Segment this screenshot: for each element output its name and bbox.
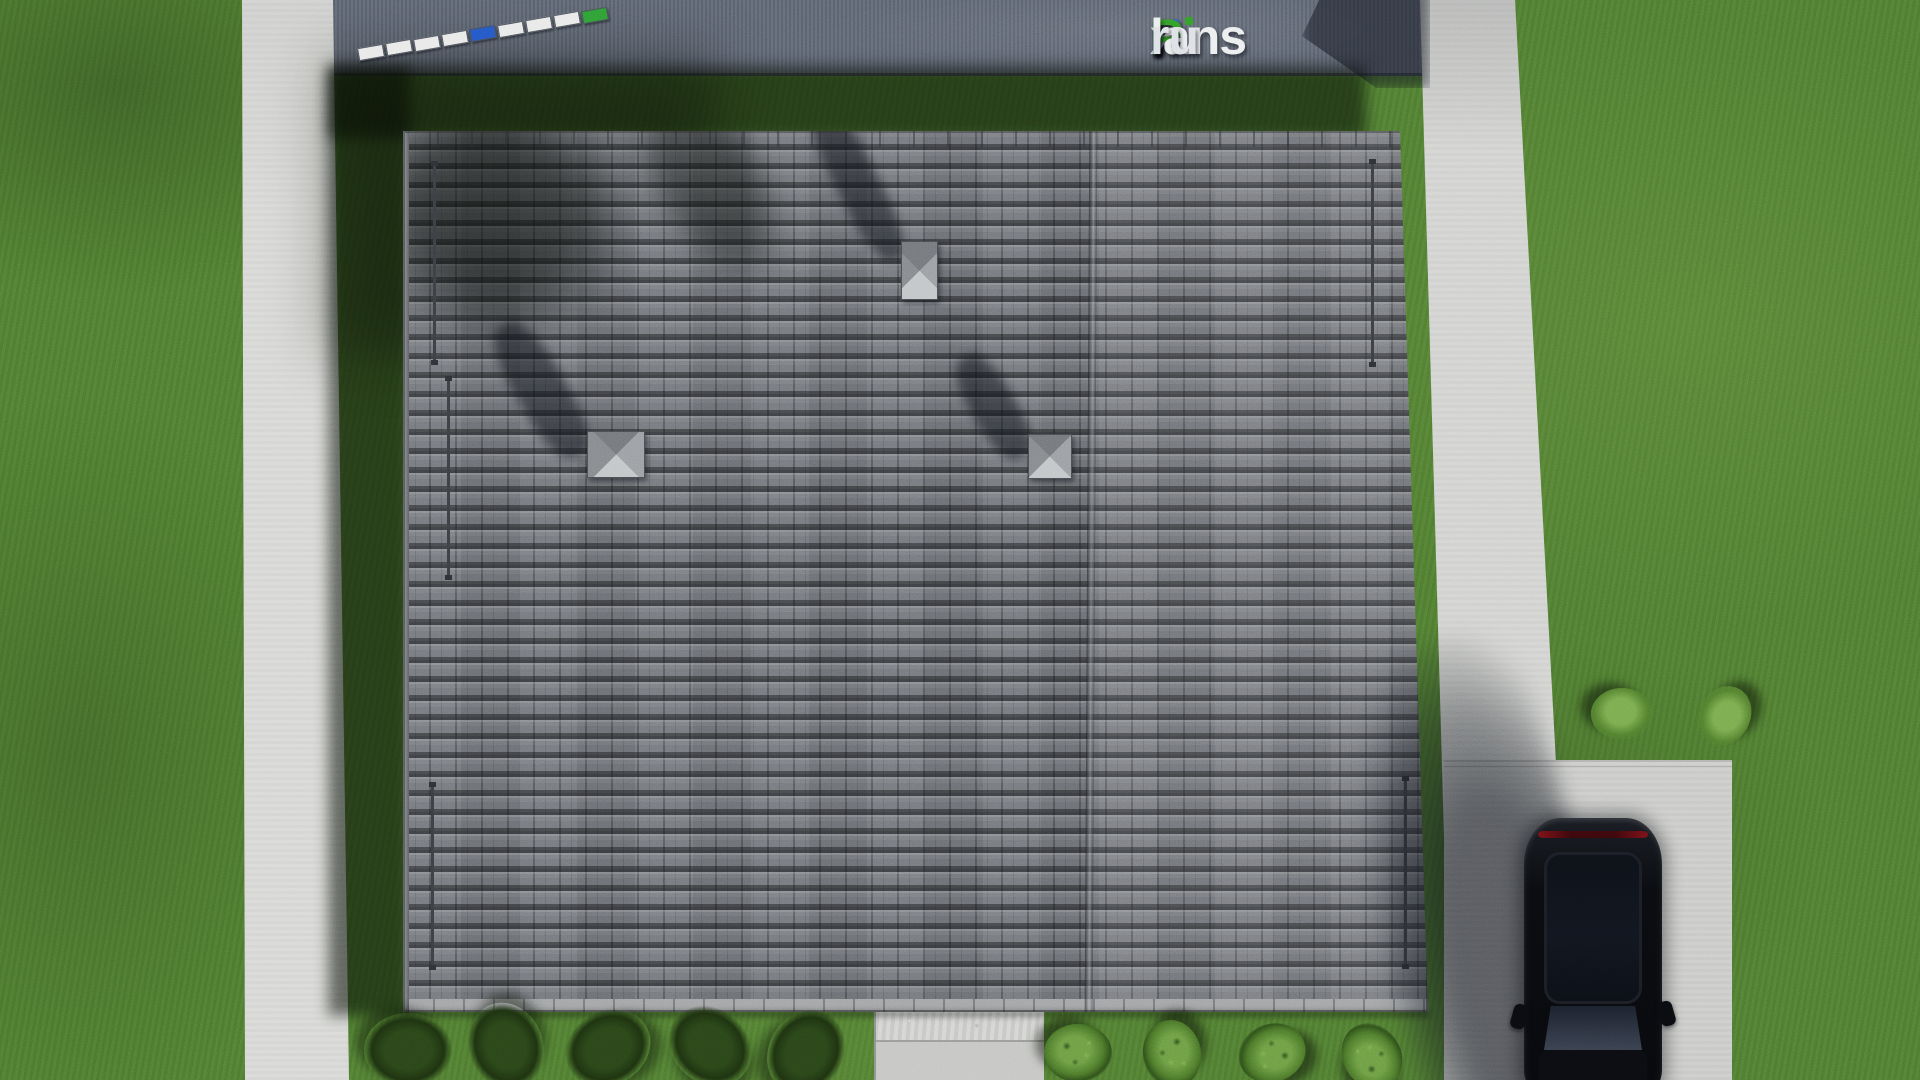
roof-outline — [403, 131, 1428, 1012]
roof-drip-shadow — [403, 1011, 1429, 1017]
house-roof — [403, 131, 1428, 1012]
green-bush — [1044, 1024, 1112, 1080]
entry-walkway — [874, 1008, 1044, 1080]
flower-bush — [364, 1013, 452, 1080]
lawn-shrub — [1591, 688, 1653, 740]
white-flowers — [368, 1017, 448, 1080]
car-hood — [1539, 1050, 1647, 1080]
logo-i-dot — [1185, 17, 1193, 25]
car-taillight-bar — [1538, 831, 1648, 838]
car-windshield — [1544, 1006, 1642, 1050]
car-roof-glass — [1544, 852, 1642, 1004]
car — [1524, 818, 1662, 1080]
aerial-render-scene: FıxPlans.ru — [0, 0, 1920, 1080]
